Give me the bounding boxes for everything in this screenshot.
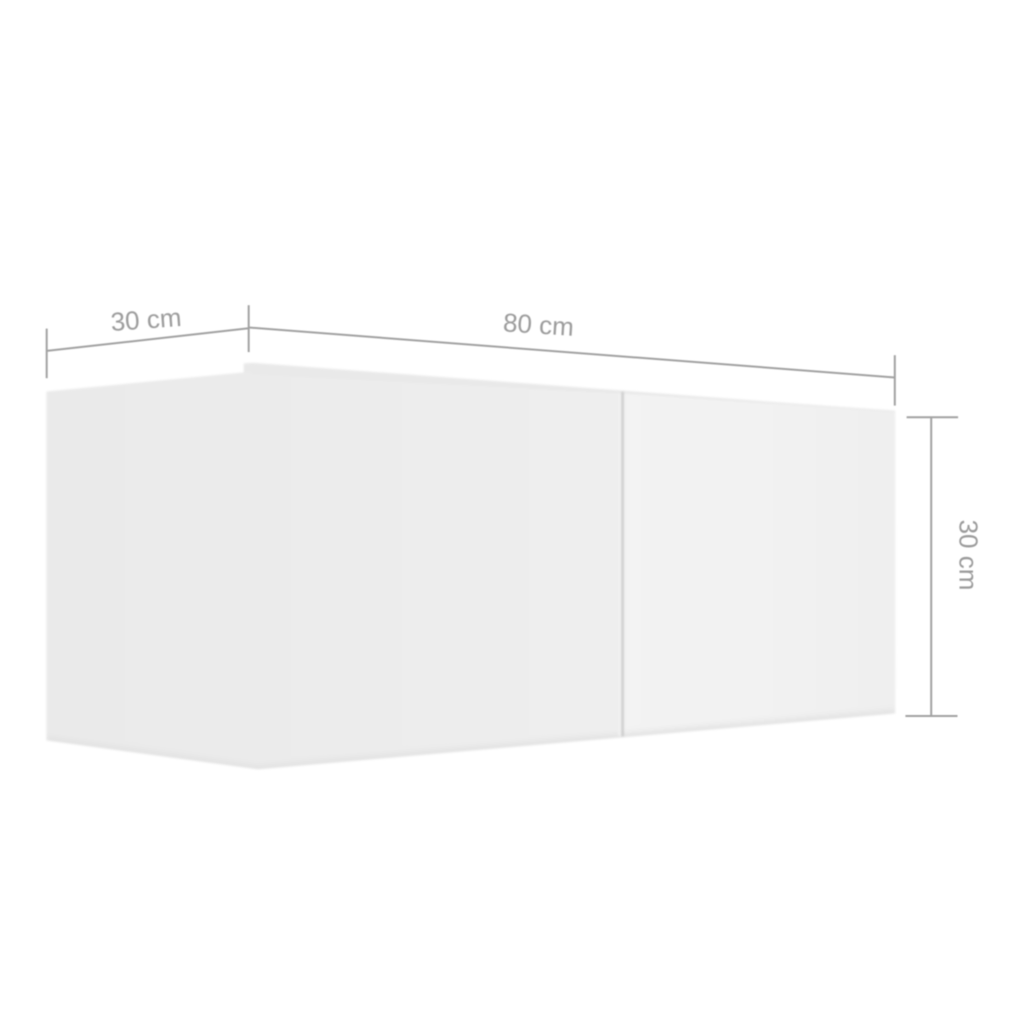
svg-text:80 cm: 80 cm (502, 307, 575, 342)
svg-text:30 cm: 30 cm (954, 520, 984, 591)
svg-text:30 cm: 30 cm (110, 302, 183, 337)
